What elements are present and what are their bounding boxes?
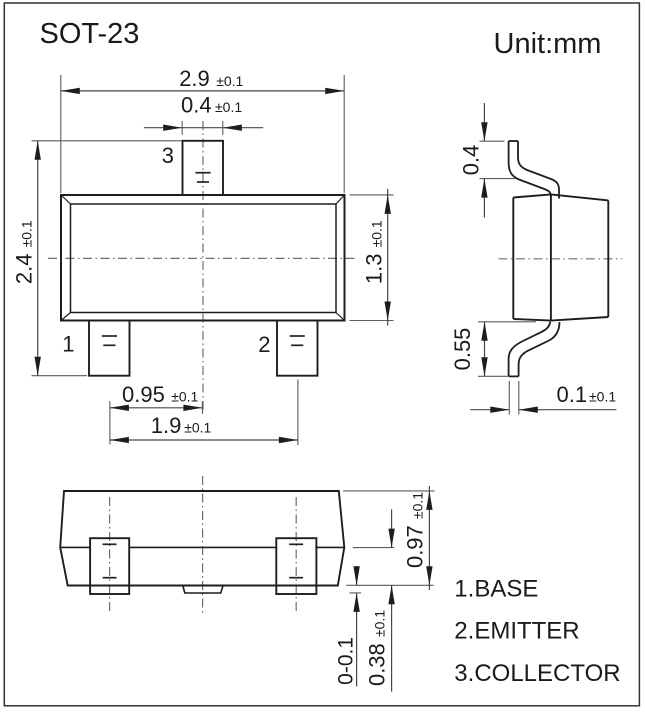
svg-text:1.9: 1.9 <box>151 413 182 438</box>
svg-text:±0.1: ±0.1 <box>184 420 211 436</box>
svg-text:2.EMITTER: 2.EMITTER <box>454 618 579 645</box>
svg-text:1.BASE: 1.BASE <box>454 576 538 603</box>
svg-text:SOT-23: SOT-23 <box>40 18 140 50</box>
svg-text:0.1: 0.1 <box>557 382 588 407</box>
svg-text:0.4: 0.4 <box>181 92 212 117</box>
svg-text:±0.1: ±0.1 <box>589 389 616 405</box>
svg-text:2: 2 <box>258 332 270 357</box>
svg-text:±0.1: ±0.1 <box>216 73 243 89</box>
svg-text:3: 3 <box>162 143 174 168</box>
svg-text:0.4: 0.4 <box>459 145 484 176</box>
svg-text:2.9: 2.9 <box>179 66 210 91</box>
svg-text:1: 1 <box>62 332 74 357</box>
svg-text:±0.1: ±0.1 <box>171 389 198 405</box>
svg-text:0.55: 0.55 <box>450 328 475 371</box>
svg-text:0.95: 0.95 <box>122 382 165 407</box>
svg-text:±0.1: ±0.1 <box>215 99 242 115</box>
svg-text:3.COLLECTOR: 3.COLLECTOR <box>454 660 620 687</box>
svg-text:0-0.1: 0-0.1 <box>335 637 358 685</box>
svg-text:Unit:mm: Unit:mm <box>494 28 602 60</box>
